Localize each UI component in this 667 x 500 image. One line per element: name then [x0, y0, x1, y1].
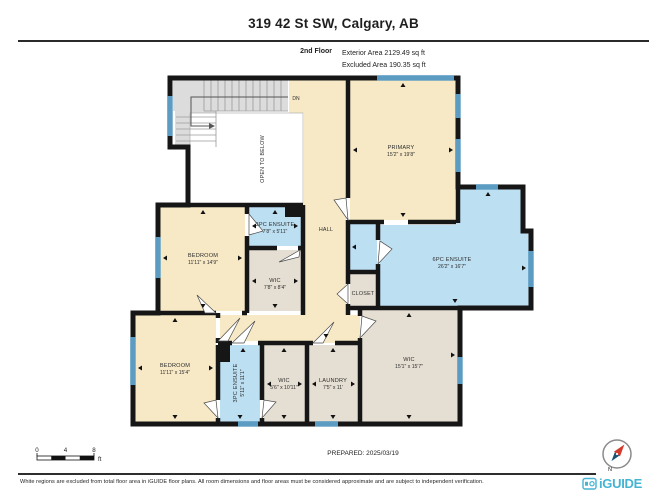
bedroom-bottom-dims: 11'11" x 15'4"	[160, 370, 190, 376]
iguide-logo: iGUIDE	[582, 476, 642, 491]
scale-unit: ft	[98, 456, 102, 463]
exterior-area: Exterior Area 2129.49 sq ft	[342, 48, 426, 60]
ensuite3-bottom-label: 3PC ENSUITE	[233, 363, 239, 402]
hall	[304, 80, 346, 343]
ensuite6-dims: 26'2" x 16'7"	[438, 264, 466, 270]
primary-label: PRIMARY	[388, 145, 415, 151]
window	[315, 421, 338, 427]
primary-dims: 15'2" x 19'8"	[387, 152, 415, 158]
window	[457, 357, 463, 384]
wic-56-dims: 5'6" x 10'11"	[270, 385, 298, 391]
ensuite3-bottom-dims: 5'11" x 11'1"	[240, 369, 246, 396]
bedroom-mid-label: BEDROOM	[188, 253, 218, 259]
floor-plan-page: 319 42 St SW, Calgary, AB 2nd Floor Exte…	[0, 0, 667, 500]
room-bedroom-mid	[160, 207, 245, 311]
room-fills	[135, 80, 529, 422]
floor-label: 2nd Floor	[258, 48, 332, 55]
scale-0: 0	[35, 447, 39, 454]
wic-small-label: WIC	[269, 278, 280, 284]
window	[238, 421, 258, 427]
scale-8: 8	[92, 447, 96, 454]
laundry-dims: 7'5" x 11'	[323, 385, 343, 391]
scale-seg	[51, 456, 65, 460]
scale-4: 4	[64, 447, 68, 454]
window	[528, 251, 534, 287]
window	[476, 184, 498, 190]
window	[155, 237, 161, 278]
wall-notch-2	[218, 345, 230, 362]
floor-plan-svg: DN OPEN TO BELOW PRIMARY 15'2" x 19'8" 6…	[128, 72, 538, 430]
compass-icon: N	[598, 436, 636, 474]
page-title: 319 42 St SW, Calgary, AB	[0, 16, 667, 31]
iguide-logo-text: iGUIDE	[599, 476, 642, 491]
prepared-date: PREPARED: 2025/03/19	[327, 450, 398, 457]
room-closet	[350, 274, 377, 306]
window	[130, 337, 136, 385]
wall-notch-1	[285, 205, 303, 217]
closet-label: CLOSET	[352, 291, 375, 297]
open-to-below-area	[190, 113, 303, 205]
window	[455, 94, 461, 118]
excluded-area: Excluded Area 190.35 sq ft	[342, 60, 426, 72]
iguide-logo-icon	[582, 476, 597, 491]
wic-big-dims: 15'1" x 15'7"	[395, 364, 423, 370]
scale-seg	[80, 456, 94, 460]
hall-label: HALL	[319, 227, 333, 233]
bedroom-bottom-label: BEDROOM	[160, 363, 190, 369]
laundry-label: LAUNDRY	[319, 378, 347, 384]
stairs-dn-label: DN	[292, 96, 300, 102]
area-summary: Exterior Area 2129.49 sq ft Excluded Are…	[342, 48, 426, 71]
bedroom-mid-dims: 11'11" x 14'9"	[188, 260, 218, 266]
window	[455, 139, 461, 172]
ensuite3-top-label: 3PC ENSUITE	[256, 222, 295, 228]
ensuite6-label: 6PC ENSUITE	[433, 257, 472, 263]
north-label: N	[608, 467, 612, 473]
window	[167, 96, 173, 136]
scale-bar: 0 4 8 ft	[28, 444, 112, 468]
disclaimer-text: White regions are excluded from total fl…	[20, 479, 484, 485]
open-to-below-label: OPEN TO BELOW	[260, 134, 266, 182]
window	[377, 75, 454, 81]
wic-big-label: WIC	[403, 357, 414, 363]
title-divider	[18, 40, 649, 42]
wic-56-label: WIC	[278, 378, 289, 384]
footer-divider	[18, 473, 596, 475]
ensuite3-top-dims: 7'8" x 5'11"	[263, 229, 288, 235]
wic-small-dims: 7'8" x 8'4"	[264, 285, 286, 291]
